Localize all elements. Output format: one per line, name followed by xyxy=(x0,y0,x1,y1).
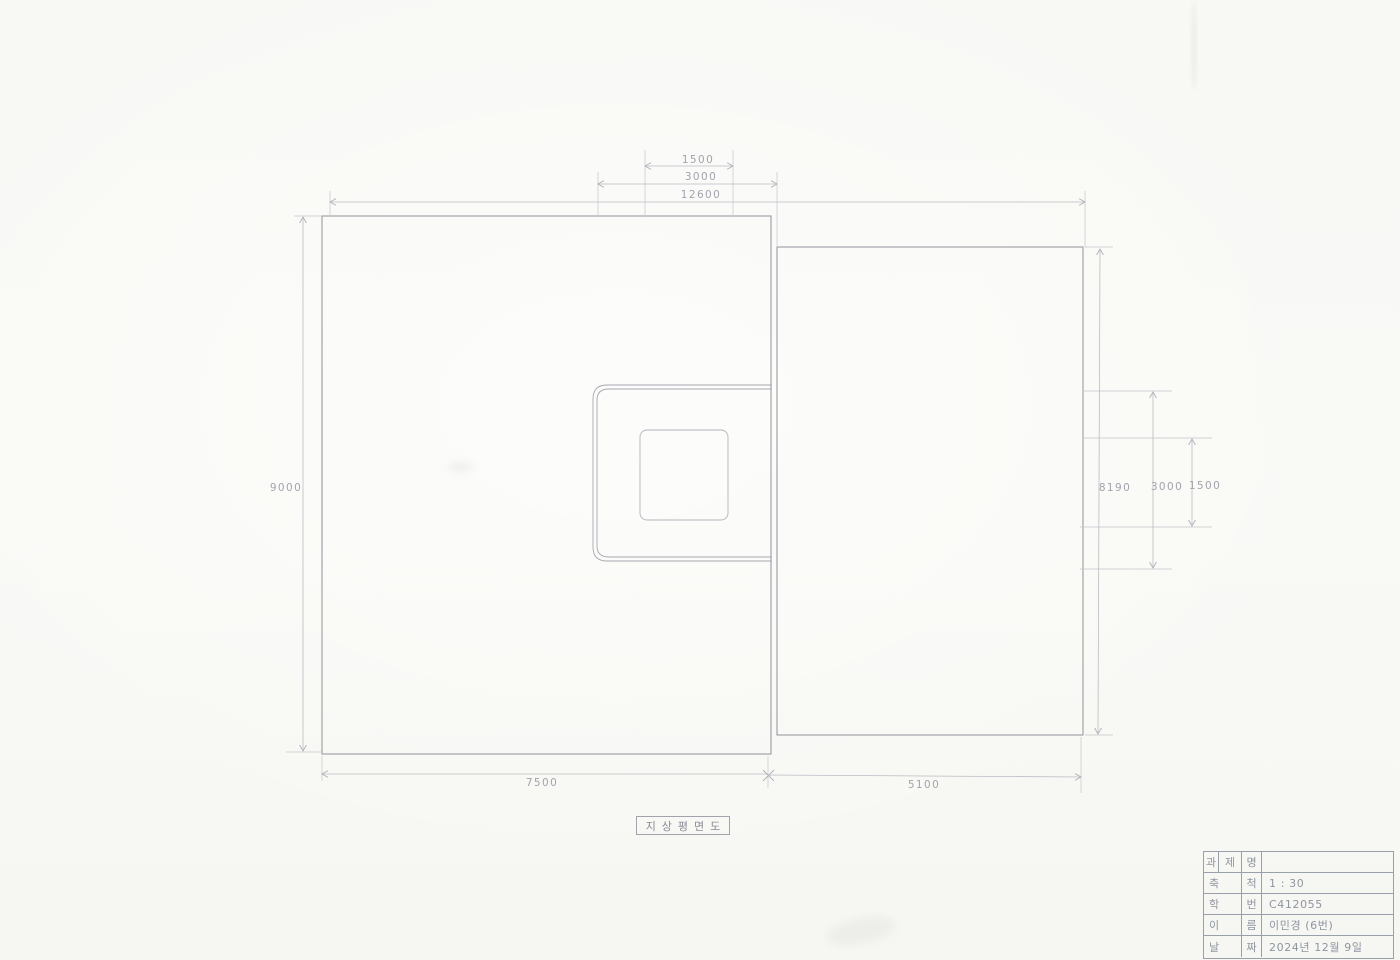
dim-label-bottom-right: 5100 xyxy=(908,779,940,791)
title-block-label-char: 제 xyxy=(1219,852,1242,873)
title-block-label-char: 학 xyxy=(1204,894,1242,915)
title-block-label-char: 척 xyxy=(1242,873,1262,894)
title-block-label-char: 름 xyxy=(1242,915,1262,936)
title-block-label-char: 과 xyxy=(1204,852,1219,873)
title-block-value-date: 2024년 12월 9일 xyxy=(1262,936,1393,957)
dim-label-right-mid: 3000 xyxy=(1151,481,1183,493)
dim-label-top-inner: 1500 xyxy=(682,154,714,166)
title-block-label-char: 짜 xyxy=(1242,936,1262,957)
dimension-lines xyxy=(303,166,1192,781)
title-block-label-char: 축 xyxy=(1204,873,1242,894)
title-block-label-char: 명 xyxy=(1242,852,1262,873)
central-structure-outline xyxy=(593,385,772,561)
title-block-value-scale: 1 : 30 xyxy=(1262,873,1393,894)
dim-label-right-inner: 1500 xyxy=(1189,480,1221,492)
dim-label-right-total: 8190 xyxy=(1099,482,1131,494)
title-block-label-char: 날 xyxy=(1204,936,1242,957)
right-room-outline xyxy=(777,247,1083,735)
drawing-title: 지상평면도 xyxy=(640,818,727,834)
title-block-value-student-id: C412055 xyxy=(1262,894,1393,915)
title-block-value-project xyxy=(1262,852,1393,873)
title-block-label-char: 이 xyxy=(1204,915,1242,936)
title-block-label-char: 번 xyxy=(1242,894,1262,915)
dim-label-left-total: 9000 xyxy=(270,482,302,494)
left-room-outline xyxy=(322,216,771,754)
inner-square-outline xyxy=(640,430,728,520)
dim-label-top-total: 12600 xyxy=(681,189,721,201)
drawing-title-box: 지상평면도 xyxy=(636,816,730,835)
title-block: 과 제 명 축 척 1 : 30 학 번 C412055 이 름 이민경 (6번… xyxy=(1203,851,1394,959)
title-block-value-name: 이민경 (6번) xyxy=(1262,915,1393,936)
drawing-sheet: 1500 3000 12600 9000 7500 5100 8190 3000… xyxy=(0,0,1400,960)
dim-label-bottom-left: 7500 xyxy=(526,777,558,789)
dim-label-top-mid: 3000 xyxy=(685,171,717,183)
